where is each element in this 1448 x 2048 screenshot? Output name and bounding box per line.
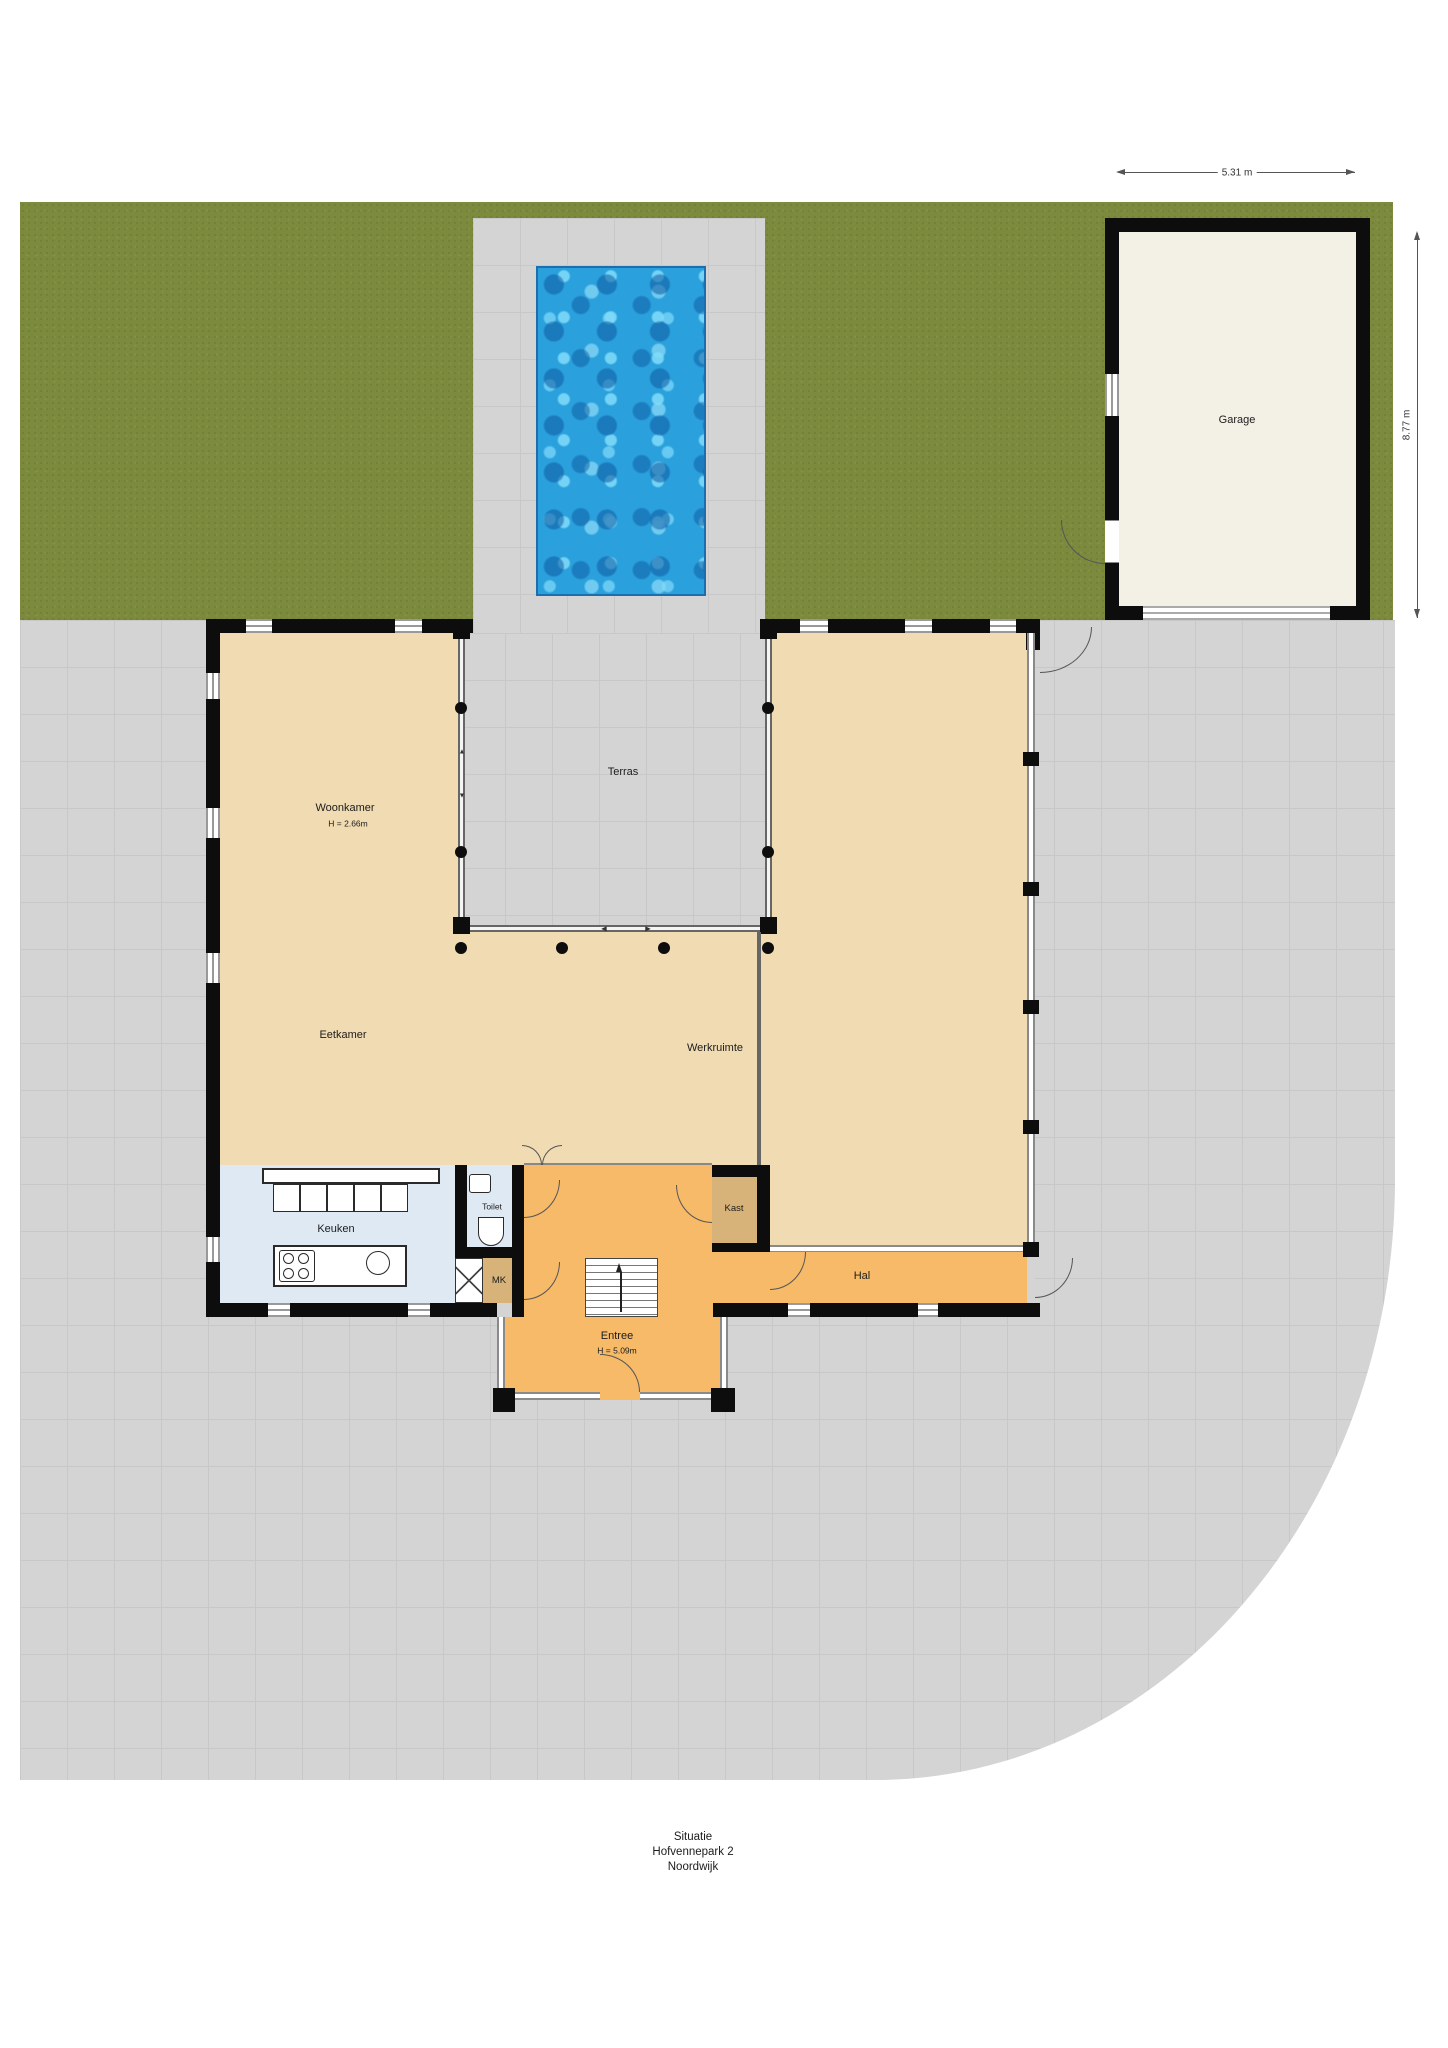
label-terras: Terras [608, 766, 639, 778]
kitchen-counter [262, 1168, 440, 1184]
column-dot [556, 942, 568, 954]
stove-burner [298, 1253, 309, 1264]
column-dot [658, 942, 670, 954]
window [408, 1303, 430, 1317]
wall-vestibule-right [720, 1317, 728, 1393]
swimming-pool [536, 266, 706, 596]
door-opening-hal-exit [1027, 1258, 1035, 1296]
washbasin [469, 1174, 491, 1193]
glass-wall-terras-bottom [458, 925, 772, 932]
room-woonkamer [220, 633, 458, 1165]
room-werkruimte-upper [772, 633, 1027, 933]
dim-arrow-down [1414, 609, 1420, 618]
dimension-garage-height: 8.77 m [1402, 406, 1413, 445]
wall-werkruimte-right [1027, 633, 1035, 1257]
slide-arrow-up-icon: ▲ [459, 749, 466, 756]
glass-wall-terras-left [458, 633, 465, 932]
floorplan-canvas: Garage 5.31 m 8.77 m [0, 0, 1448, 2048]
column-dot [762, 846, 774, 858]
footer-plan-type: Situatie [652, 1830, 733, 1845]
dim-arrow-right [1346, 169, 1355, 175]
column-dot [762, 942, 774, 954]
wall-post [1023, 882, 1039, 896]
glass-corner-post [760, 917, 777, 934]
staircase-direction-line [620, 1272, 622, 1312]
room-werkruimte-lower [761, 932, 1027, 1245]
slide-arrow-left-icon: ◄ [600, 925, 609, 934]
label-entree: Entree [601, 1330, 633, 1342]
wall-keuken-toilet [455, 1165, 467, 1247]
column-dot [455, 702, 467, 714]
window [206, 808, 220, 838]
label-entree-height: H = 5.09m [597, 1346, 636, 1355]
staircase-up-arrow-icon [616, 1263, 622, 1272]
label-toilet: Toilet [482, 1202, 502, 1211]
window [800, 619, 828, 633]
wall-hal-top [770, 1245, 1027, 1252]
glass-corner-post [760, 619, 777, 639]
stove-burner [283, 1253, 294, 1264]
footer-address: Hofvennepark 2 [652, 1845, 733, 1860]
kitchen-cabinet [273, 1184, 300, 1212]
label-woonkamer: Woonkamer [315, 802, 374, 814]
vestibule-corner-post [711, 1388, 735, 1412]
toilet-bowl [478, 1217, 504, 1246]
wall-bottom-right [728, 1303, 1040, 1317]
window [246, 619, 272, 633]
window [990, 619, 1016, 633]
duct-shaft [455, 1258, 483, 1303]
room-terras-floor [458, 633, 772, 932]
garage-door [1143, 606, 1330, 620]
wall-post [1023, 752, 1039, 766]
plan-footer: Situatie Hofvennepark 2 Noordwijk [652, 1830, 733, 1875]
wall-entree-left [512, 1165, 524, 1317]
wall-bottom-left [206, 1303, 497, 1317]
stove-burner [283, 1268, 294, 1279]
label-hal: Hal [854, 1270, 871, 1282]
dim-arrow-up [1414, 231, 1420, 240]
column-dot [455, 846, 467, 858]
window [788, 1303, 810, 1317]
dimension-garage-width: 5.31 m [1218, 168, 1257, 179]
column-dot [762, 702, 774, 714]
glass-wall-terras-right [765, 633, 772, 932]
dim-arrow-left [1116, 169, 1125, 175]
vestibule-corner-post [713, 1303, 728, 1317]
garage-window [1105, 374, 1119, 416]
glass-corner-post [453, 917, 470, 934]
kitchen-cabinet [381, 1184, 408, 1212]
label-eetkamer: Eetkamer [319, 1029, 366, 1041]
wall-post [1023, 1000, 1039, 1014]
label-woonkamer-height: H = 2.66m [328, 819, 367, 828]
glass-corner-post [453, 619, 470, 639]
slide-arrow-right-icon: ► [644, 925, 653, 934]
label-werkruimte: Werkruimte [687, 1042, 743, 1054]
window [918, 1303, 938, 1317]
label-kast: Kast [724, 1204, 743, 1214]
kitchen-cabinet [354, 1184, 381, 1212]
kitchen-sink [366, 1251, 390, 1275]
label-garage: Garage [1219, 414, 1256, 426]
vestibule-corner-post [493, 1388, 515, 1412]
wall-kast-bottom [712, 1243, 770, 1252]
kitchen-cabinet [327, 1184, 354, 1212]
kitchen-cabinet [300, 1184, 327, 1212]
window [206, 953, 220, 983]
window [206, 673, 220, 699]
label-mk: MK [492, 1276, 506, 1286]
stove-burner [298, 1268, 309, 1279]
wall-kast-right [757, 1165, 770, 1250]
column-dot [455, 942, 467, 954]
window [268, 1303, 290, 1317]
slide-arrow-down-icon: ▼ [459, 793, 466, 800]
partition-line-eetkamer-werkruimte [757, 932, 761, 1165]
garage-side-door-opening [1105, 520, 1119, 563]
window [206, 1237, 220, 1262]
label-keuken: Keuken [317, 1223, 354, 1235]
wall-post [1023, 1242, 1039, 1257]
footer-city: Noordwijk [652, 1860, 733, 1875]
wall-post [1023, 1120, 1039, 1134]
window [905, 619, 932, 633]
dimension-line-garage-height [1417, 233, 1418, 618]
window [395, 619, 422, 633]
